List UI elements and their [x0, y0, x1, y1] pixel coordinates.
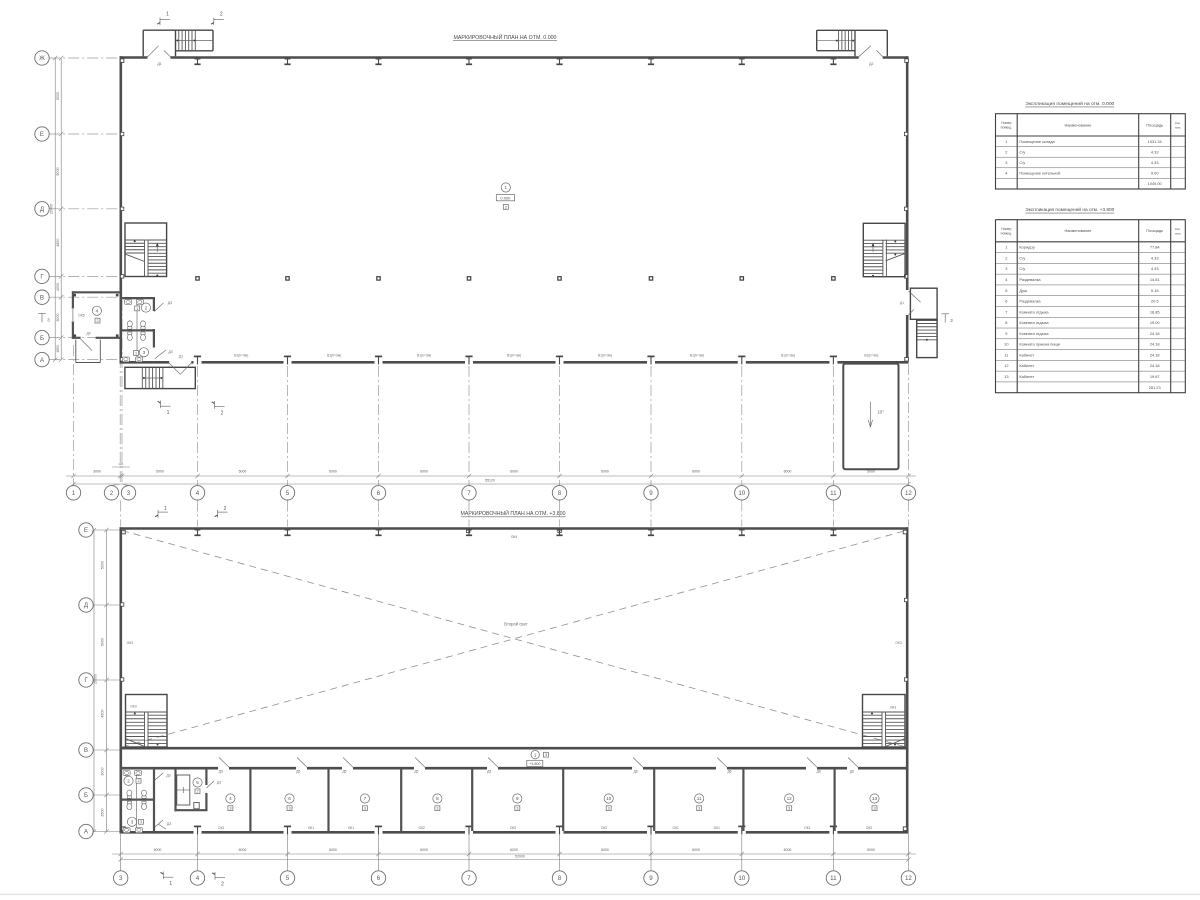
svg-text:12: 12	[787, 796, 793, 801]
svg-text:1000: 1000	[56, 283, 60, 291]
svg-text:В1(h=3м): В1(h=3м)	[234, 354, 248, 358]
svg-text:10°: 10°	[877, 410, 884, 415]
svg-text:Кабинет: Кабинет	[1019, 363, 1034, 368]
svg-text:5: 5	[196, 780, 199, 785]
svg-text:4500: 4500	[56, 239, 60, 247]
svg-text:Д6: Д6	[817, 770, 821, 774]
svg-text:Экспликация помещений на отм.: Экспликация помещений на отм. +3.800	[1025, 207, 1115, 212]
svg-text:С/у: С/у	[1019, 255, 1025, 260]
svg-text:ОК1: ОК1	[673, 826, 679, 830]
svg-text:13: 13	[1004, 374, 1008, 379]
svg-text:24.18: 24.18	[1150, 331, 1160, 336]
svg-text:Комната отдыха: Комната отдыха	[1019, 331, 1049, 336]
svg-text:24.18: 24.18	[1150, 363, 1160, 368]
svg-text:ОК2: ОК2	[601, 826, 607, 830]
svg-text:Раздевалка: Раздевалка	[1019, 299, 1041, 304]
svg-text:2: 2	[96, 319, 98, 323]
svg-text:Д1: Д1	[900, 301, 904, 305]
svg-text:Д5: Д5	[296, 770, 300, 774]
svg-text:1: 1	[136, 307, 138, 311]
svg-text:ОК2: ОК2	[419, 826, 425, 830]
svg-text:МАРКИРОВОЧНЫЙ ПЛАН НА ОТМ. +3.: МАРКИРОВОЧНЫЙ ПЛАН НА ОТМ. +3.800	[461, 509, 566, 517]
svg-text:6000: 6000	[784, 848, 792, 852]
svg-text:9: 9	[649, 490, 653, 497]
svg-text:3: 3	[436, 807, 438, 811]
svg-text:0.000: 0.000	[500, 195, 511, 200]
svg-text:МАРКИРОВОЧНЫЙ ПЛАН НА ОТМ. 0.0: МАРКИРОВОЧНЫЙ ПЛАН НА ОТМ. 0.000	[454, 33, 557, 41]
svg-text:ОК3: ОК3	[890, 705, 896, 709]
svg-text:3: 3	[698, 807, 700, 811]
svg-text:8: 8	[1005, 320, 1007, 325]
svg-text:5000: 5000	[101, 638, 105, 646]
svg-text:6: 6	[288, 796, 291, 801]
svg-text:Б: Б	[40, 335, 44, 342]
svg-text:В1(h=3м): В1(h=3м)	[417, 354, 431, 358]
svg-text:В1(h=3м): В1(h=3м)	[690, 354, 704, 358]
svg-text:ОК3: ОК3	[127, 641, 133, 645]
svg-text:3000: 3000	[56, 313, 60, 321]
svg-text:19.67: 19.67	[1150, 374, 1160, 379]
svg-text:120: 120	[118, 462, 123, 466]
svg-text:Комната приема пищи: Комната приема пищи	[1019, 342, 1060, 347]
svg-text:В1(h=3м): В1(h=3м)	[598, 354, 612, 358]
svg-text:6000: 6000	[601, 848, 609, 852]
svg-text:6000: 6000	[692, 470, 700, 474]
svg-text:пом.: пом.	[1175, 125, 1182, 129]
svg-text:3: 3	[288, 807, 290, 811]
svg-text:5000: 5000	[156, 470, 164, 474]
svg-text:2: 2	[196, 790, 198, 794]
svg-text:24.18: 24.18	[1150, 352, 1160, 357]
svg-text:10: 10	[606, 796, 612, 801]
svg-text:Д4: Д4	[86, 332, 90, 336]
svg-text:6000: 6000	[329, 470, 337, 474]
svg-text:3: 3	[143, 350, 146, 355]
svg-text:5000: 5000	[56, 92, 60, 100]
svg-text:3: 3	[229, 807, 231, 811]
svg-text:ОК3: ОК3	[130, 705, 136, 709]
svg-text:Наименование: Наименование	[1064, 228, 1091, 233]
svg-text:13: 13	[872, 796, 878, 801]
svg-text:8: 8	[436, 796, 439, 801]
svg-text:ОК1: ОК1	[308, 826, 314, 830]
svg-text:2: 2	[505, 205, 507, 209]
svg-text:Комната отдыха: Комната отдыха	[1019, 309, 1049, 314]
svg-text:20000: 20000	[50, 204, 54, 214]
svg-text:Д3: Д3	[168, 350, 172, 354]
svg-text:4.33: 4.33	[1151, 255, 1159, 260]
svg-text:2: 2	[220, 12, 223, 18]
svg-text:9: 9	[516, 796, 519, 801]
svg-text:2: 2	[110, 490, 114, 497]
svg-text:3: 3	[140, 820, 142, 824]
svg-text:Д5: Д5	[487, 770, 491, 774]
svg-text:9: 9	[649, 875, 653, 882]
svg-text:Е: Е	[40, 131, 44, 138]
svg-text:Душ: Душ	[1019, 288, 1027, 293]
svg-text:Наименование: Наименование	[1064, 122, 1091, 127]
svg-text:1: 1	[167, 410, 170, 416]
svg-text:ОК4: ОК4	[511, 535, 517, 539]
svg-text:В1(h=3м): В1(h=3м)	[327, 354, 341, 358]
svg-text:С/у: С/у	[1019, 149, 1025, 154]
svg-text:Кабинет: Кабинет	[1019, 374, 1034, 379]
svg-text:1: 1	[166, 12, 169, 18]
svg-text:Площадь: Площадь	[1146, 228, 1163, 233]
svg-text:9000: 9000	[154, 848, 162, 852]
svg-text:18.85: 18.85	[1150, 309, 1160, 314]
svg-text:5.18: 5.18	[1151, 288, 1159, 293]
svg-text:1031.34: 1031.34	[1148, 139, 1163, 144]
svg-text:4: 4	[196, 875, 200, 882]
svg-text:7: 7	[467, 490, 471, 497]
svg-text:2: 2	[1005, 149, 1007, 154]
svg-text:1: 1	[1005, 245, 1007, 250]
svg-text:В: В	[40, 294, 44, 301]
svg-text:5: 5	[1005, 288, 1007, 293]
svg-text:В1(h=3м): В1(h=3м)	[507, 354, 521, 358]
svg-text:5: 5	[286, 490, 290, 497]
svg-text:5000: 5000	[56, 167, 60, 175]
svg-text:11: 11	[697, 796, 702, 801]
svg-text:1: 1	[164, 506, 167, 512]
svg-text:6000: 6000	[784, 470, 792, 474]
svg-text:Коридор: Коридор	[1019, 245, 1034, 250]
svg-text:ОК1: ОК1	[348, 826, 354, 830]
svg-text:2: 2	[1005, 255, 1007, 260]
svg-text:В1(h=3м): В1(h=3м)	[781, 354, 795, 358]
svg-text:Д6: Д6	[727, 770, 731, 774]
svg-text:Д3: Д3	[167, 822, 171, 826]
svg-text:ОК1: ОК1	[714, 826, 720, 830]
svg-text:3: 3	[873, 807, 875, 811]
svg-text:4: 4	[196, 490, 200, 497]
svg-text:Раздевалка: Раздевалка	[1019, 277, 1041, 282]
svg-text:Кол.: Кол.	[1175, 121, 1181, 125]
svg-text:11: 11	[1004, 352, 1008, 357]
svg-text:Е: Е	[84, 527, 88, 534]
svg-text:6: 6	[377, 875, 381, 882]
svg-text:6: 6	[377, 490, 381, 497]
svg-text:5000: 5000	[867, 848, 875, 852]
svg-text:5: 5	[286, 875, 290, 882]
svg-text:ОК1: ОК1	[218, 826, 224, 830]
svg-text:24.18: 24.18	[1150, 342, 1160, 347]
svg-text:3: 3	[608, 807, 610, 811]
svg-text:4: 4	[229, 796, 232, 801]
svg-text:77.84: 77.84	[1150, 245, 1161, 250]
svg-text:2: 2	[137, 779, 139, 783]
svg-text:3000: 3000	[101, 767, 105, 775]
svg-text:ОК1: ОК1	[804, 826, 810, 830]
svg-text:Д3: Д3	[166, 774, 170, 778]
svg-text:1500: 1500	[56, 345, 60, 353]
svg-text:Д5: Д5	[414, 770, 418, 774]
svg-text:3: 3	[1005, 266, 1007, 271]
svg-text:7: 7	[364, 796, 367, 801]
svg-text:Д1: Д1	[179, 355, 183, 359]
svg-text:2: 2	[221, 411, 224, 417]
svg-text:6000: 6000	[510, 848, 518, 852]
svg-text:11: 11	[830, 875, 837, 882]
svg-text:Б: Б	[84, 792, 88, 799]
svg-text:ОК2: ОК2	[866, 826, 872, 830]
svg-text:помещ.: помещ.	[1001, 231, 1012, 235]
svg-text:Д5: Д5	[342, 770, 346, 774]
svg-text:3: 3	[119, 875, 123, 882]
svg-text:Д3: Д3	[217, 780, 221, 784]
svg-text:Д1: Д1	[157, 62, 161, 66]
svg-text:2: 2	[145, 305, 148, 310]
svg-text:+3.800: +3.800	[529, 762, 540, 766]
svg-text:9.00: 9.00	[1151, 171, 1159, 176]
svg-text:11: 11	[830, 490, 837, 497]
svg-text:19.00: 19.00	[1150, 320, 1161, 325]
svg-text:2: 2	[224, 506, 227, 512]
svg-text:Кол.: Кол.	[1175, 227, 1181, 231]
svg-text:Д2: Д2	[869, 62, 873, 66]
svg-text:2: 2	[221, 882, 224, 888]
svg-text:Номер: Номер	[1001, 227, 1011, 231]
svg-text:3: 3	[127, 490, 131, 497]
svg-text:1: 1	[1005, 139, 1007, 144]
svg-text:Номер: Номер	[1001, 121, 1011, 125]
svg-text:6000: 6000	[692, 848, 700, 852]
svg-text:8: 8	[558, 875, 562, 882]
svg-text:12: 12	[1004, 363, 1008, 368]
svg-text:3000: 3000	[93, 470, 101, 474]
svg-text:6: 6	[1005, 299, 1007, 304]
svg-text:4500: 4500	[101, 709, 105, 717]
svg-text:2: 2	[127, 778, 130, 783]
svg-text:6000: 6000	[329, 848, 337, 852]
svg-text:6000: 6000	[510, 470, 518, 474]
svg-text:Д5: Д5	[219, 770, 223, 774]
svg-text:7: 7	[467, 875, 471, 882]
svg-text:Экспликация помещений на отм.: Экспликация помещений на отм. 0.000	[1025, 101, 1115, 106]
svg-text:12: 12	[905, 875, 912, 882]
svg-text:6000: 6000	[239, 848, 247, 852]
svg-text:55120: 55120	[485, 479, 495, 483]
svg-text:9: 9	[1005, 331, 1007, 336]
svg-text:6000: 6000	[601, 470, 609, 474]
svg-text:Помещение склада: Помещение склада	[1019, 139, 1055, 144]
svg-text:12: 12	[905, 490, 912, 497]
svg-text:6000: 6000	[420, 848, 428, 852]
svg-text:3: 3	[131, 819, 134, 824]
svg-text:2500: 2500	[101, 808, 105, 816]
svg-text:10: 10	[738, 875, 745, 882]
svg-text:1: 1	[72, 490, 76, 497]
svg-text:3: 3	[364, 807, 366, 811]
svg-text:52000: 52000	[515, 855, 525, 859]
svg-text:В: В	[84, 747, 88, 754]
svg-text:1049.00: 1049.00	[1148, 181, 1163, 186]
svg-text:3: 3	[516, 807, 518, 811]
svg-text:4.33: 4.33	[1151, 266, 1159, 271]
svg-text:3: 3	[1005, 160, 1007, 165]
svg-text:ОК2: ОК2	[510, 826, 516, 830]
svg-text:Ж: Ж	[39, 55, 45, 62]
svg-text:6000: 6000	[239, 470, 247, 474]
svg-text:10: 10	[738, 490, 745, 497]
svg-text:Второй свет: Второй свет	[504, 621, 527, 626]
svg-text:4.33: 4.33	[1151, 149, 1159, 154]
svg-text:14.81: 14.81	[1150, 277, 1160, 282]
svg-text:7: 7	[1005, 309, 1007, 314]
svg-text:4: 4	[96, 308, 99, 313]
svg-text:3: 3	[545, 753, 547, 757]
svg-text:6000: 6000	[420, 470, 428, 474]
svg-text:В1(h=3м): В1(h=3м)	[864, 354, 878, 358]
svg-text:1: 1	[169, 881, 172, 887]
svg-text:Д6: Д6	[634, 770, 638, 774]
svg-text:3: 3	[788, 807, 790, 811]
svg-text:помещ.: помещ.	[1001, 125, 1012, 129]
svg-text:ОК5: ОК5	[78, 314, 85, 318]
svg-text:С/у: С/у	[1019, 266, 1025, 271]
svg-text:Площадь: Площадь	[1146, 122, 1163, 127]
svg-text:4.33: 4.33	[1151, 160, 1159, 165]
svg-text:1: 1	[505, 185, 508, 190]
svg-text:20.5: 20.5	[1151, 299, 1159, 304]
svg-text:С/у: С/у	[1019, 160, 1025, 165]
svg-text:Комната отдыха: Комната отдыха	[1019, 320, 1049, 325]
svg-text:ОК3: ОК3	[895, 641, 901, 645]
svg-text:Д3: Д3	[168, 301, 172, 305]
svg-text:Кабинет: Кабинет	[1019, 352, 1034, 357]
svg-text:1: 1	[135, 351, 137, 355]
svg-text:Помещение котельной: Помещение котельной	[1019, 171, 1060, 176]
svg-text:пом.: пом.	[1175, 231, 1182, 235]
svg-text:Д6: Д6	[850, 770, 854, 774]
svg-text:281.23: 281.23	[1149, 385, 1161, 390]
svg-text:5000: 5000	[101, 561, 105, 569]
svg-text:20000: 20000	[94, 674, 98, 684]
svg-text:8: 8	[558, 490, 562, 497]
